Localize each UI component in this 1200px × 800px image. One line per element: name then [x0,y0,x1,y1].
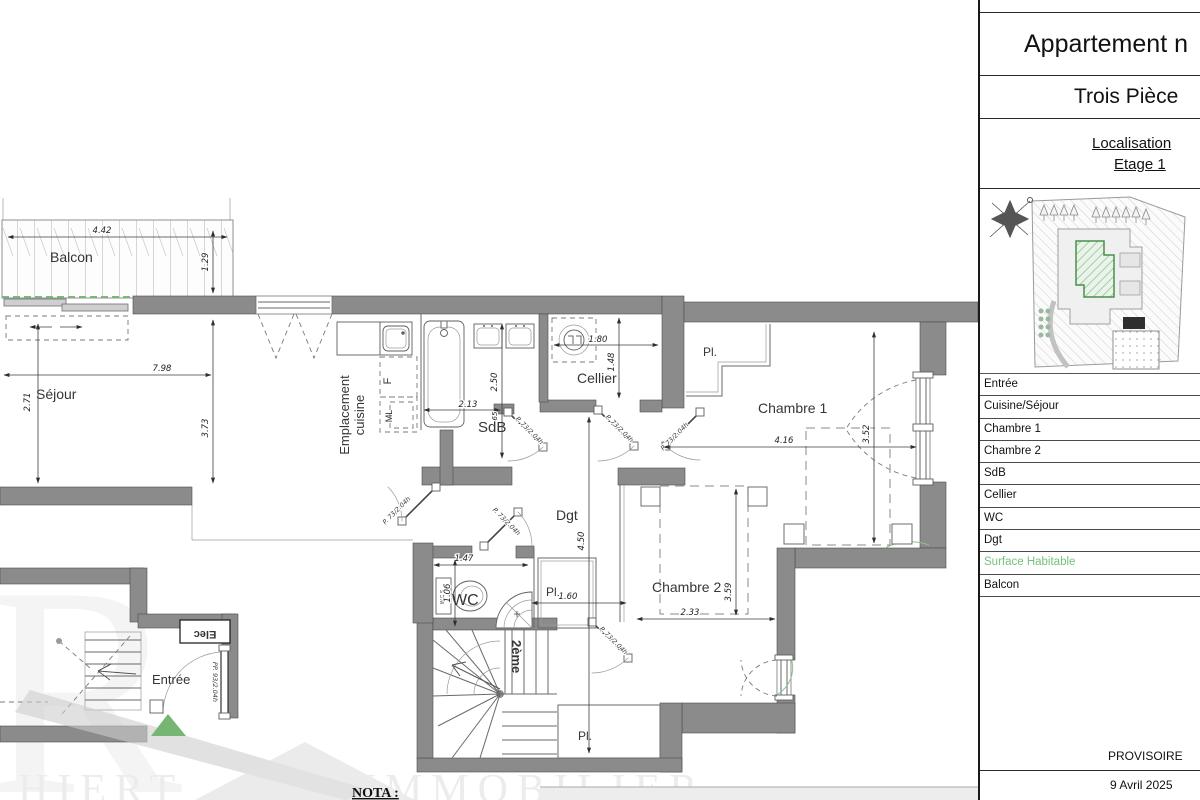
room-row: Chambre 2 [980,441,1200,463]
room-row: WC [980,508,1200,530]
svg-text:1.47: 1.47 [455,554,475,564]
wc-label: WC [452,592,479,609]
svg-text:2.50: 2.50 [490,373,500,392]
fridge-label: F [382,377,394,384]
elec-label: Elec [194,628,217,640]
svg-text:3.59: 3.59 [724,583,734,602]
svg-text:1.48: 1.48 [607,352,617,372]
door-sdb: P. 73/2.04h [504,408,547,461]
status-provisoire: PROVISOIRE [980,749,1200,770]
svg-text:P. 73/2.04h: P. 73/2.04h [598,625,629,656]
floor-plan-sheet: R Balcon 4.42 1.29 [0,0,1200,800]
door-chambre2: P. 73/2.04h [588,618,632,673]
svg-text:65: 65 [491,411,499,420]
door-hall: P. 73/2.04h [381,483,440,526]
dim-balcony-width: 4.42 [93,226,112,236]
room-row: Entrée [980,374,1200,396]
room-row: SdB [980,463,1200,485]
watermark-letter: R [0,525,191,800]
watermark-logo-back: R [0,525,191,800]
localisation-label: Localisation [980,133,1200,154]
svg-text:4.16: 4.16 [775,436,795,446]
room-row: Balcon [980,575,1200,597]
site-locator-map [980,189,1200,374]
entree-label: Entrée [152,672,190,687]
room-row: Chambre 1 [980,419,1200,441]
panel-footer: PROVISOIRE 9 Avril 2025 [980,749,1200,800]
svg-text:4.50: 4.50 [577,532,587,551]
map-pool [1113,331,1159,369]
svg-text:P. 73/2.04h: P. 73/2.04h [381,495,412,526]
chambre2-label: Chambre 2 [652,579,721,595]
balcony-label: Balcon [50,249,93,265]
map-dark-block [1123,317,1145,329]
svg-text:3.52: 3.52 [862,425,872,444]
compass-rose [990,198,1033,238]
placard-label-bottom: Pl. [578,729,592,743]
nota-label: NOTA : [352,786,399,800]
bed-chambre1 [806,428,890,545]
kitchen-label-line2: cuisine [352,395,367,435]
svg-text:2.13: 2.13 [459,400,478,410]
room-row: Cuisine/Séjour [980,396,1200,418]
panel-top-spacer [980,0,1200,13]
plan-date: 9 Avril 2025 [980,771,1200,800]
svg-text:P. 73/2.04h: P. 73/2.04h [514,415,545,446]
chambre1-label: Chambre 1 [758,400,827,416]
svg-text:2.71: 2.71 [23,393,33,412]
svg-text:3.73: 3.73 [201,419,211,438]
localisation-block: Localisation Etage 1 [980,119,1200,189]
staircase-main: 2ème [433,630,557,758]
floor-plan-drawing: R Balcon 4.42 1.29 [0,0,978,800]
stairs-2eme-label: 2ème [509,640,524,673]
svg-text:P. 73/2.04h: P. 73/2.04h [604,413,635,444]
washbasin-1 [474,324,502,348]
room-row: Cellier [980,485,1200,507]
bathroom-fixtures [424,321,534,427]
room-row: Dgt [980,530,1200,552]
svg-text:1.06: 1.06 [443,583,453,603]
kitchen: F ML Emplacement cuisine [337,322,417,455]
svg-text:P. 73/2.04h: P. 73/2.04h [659,421,690,452]
apartment-title: Appartement n [980,13,1200,76]
window-chambre2 [741,655,793,700]
balcony: Balcon 4.42 1.29 [2,198,233,298]
door-wc: P. 73/2.04h [480,506,532,550]
placard-label-ch1: Pl. [703,345,717,359]
room-row-surface-habitable: Surface Habitable [980,552,1200,574]
title-block-panel: Appartement n Trois Pièce Localisation E… [978,0,1200,800]
door-chambre1: P. 73/2.04h [659,408,704,460]
sliding-bay-door [2,297,131,340]
kitchen-label-line1: Emplacement [337,375,352,455]
windows [256,296,933,700]
room-list: Entrée Cuisine/Séjour Chambre 1 Chambre … [980,374,1200,597]
dim-balcony-height: 1.29 [201,253,211,272]
svg-text:1.80: 1.80 [589,335,608,345]
door-cellier: P. 73/2.04h [594,406,638,461]
svg-text:2.33: 2.33 [681,608,700,618]
entry-door-label: PP. 93/2.04h [211,662,219,702]
dgt-label: Dgt [556,507,578,523]
etage-label: Etage 1 [980,154,1200,175]
washbasin-2 [506,324,534,348]
window-sejour [256,296,332,358]
svg-text:1.60: 1.60 [559,592,578,602]
watermark-word1: HIERT [18,767,184,800]
svg-text:7.98: 7.98 [153,364,173,374]
washer-label: ML [384,410,394,423]
apartment-type: Trois Pièce [980,76,1200,119]
sejour-label: Séjour [36,386,77,402]
